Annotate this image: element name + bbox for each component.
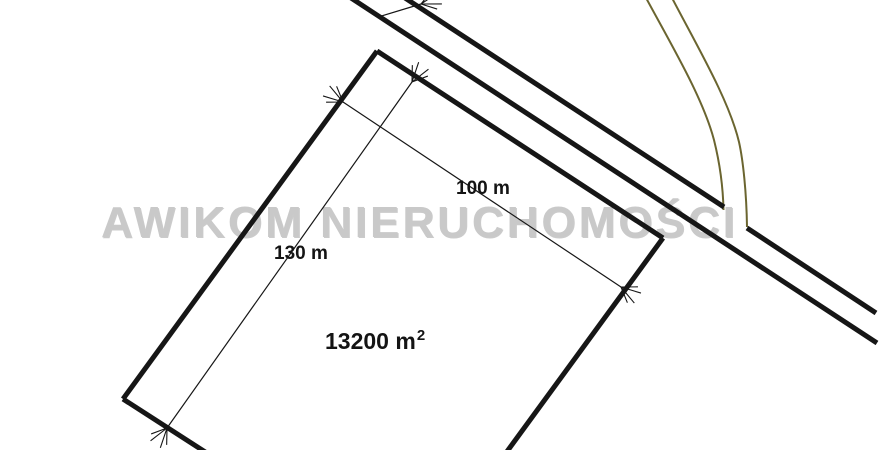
plot-plan-drawing bbox=[0, 0, 880, 450]
length-dimension-label: 130 m bbox=[274, 244, 328, 264]
boundary-and-road-lines bbox=[123, 0, 877, 450]
plot-bottom-edge bbox=[123, 399, 213, 450]
dimension-arrows bbox=[167, 4, 621, 428]
area-label: 13200 m2 bbox=[325, 329, 424, 353]
plot-right-edge bbox=[503, 238, 663, 450]
site-plan-image: AWIKOM NIERUCHOMOŚCI 100 m 130 m 13200 m… bbox=[0, 0, 880, 450]
width-dimension-label: 100 m bbox=[456, 179, 510, 199]
area-superscript: 2 bbox=[417, 327, 425, 344]
plot-top-edge bbox=[377, 51, 663, 238]
road-north-edge-segment-1 bbox=[402, 0, 724, 207]
area-value: 13200 m bbox=[325, 328, 416, 354]
cropped-dimension-arrow-top bbox=[378, 4, 421, 17]
track-east-line bbox=[671, 0, 747, 227]
dirt-track-lines bbox=[645, 0, 747, 227]
road-south-edge bbox=[348, 0, 877, 343]
